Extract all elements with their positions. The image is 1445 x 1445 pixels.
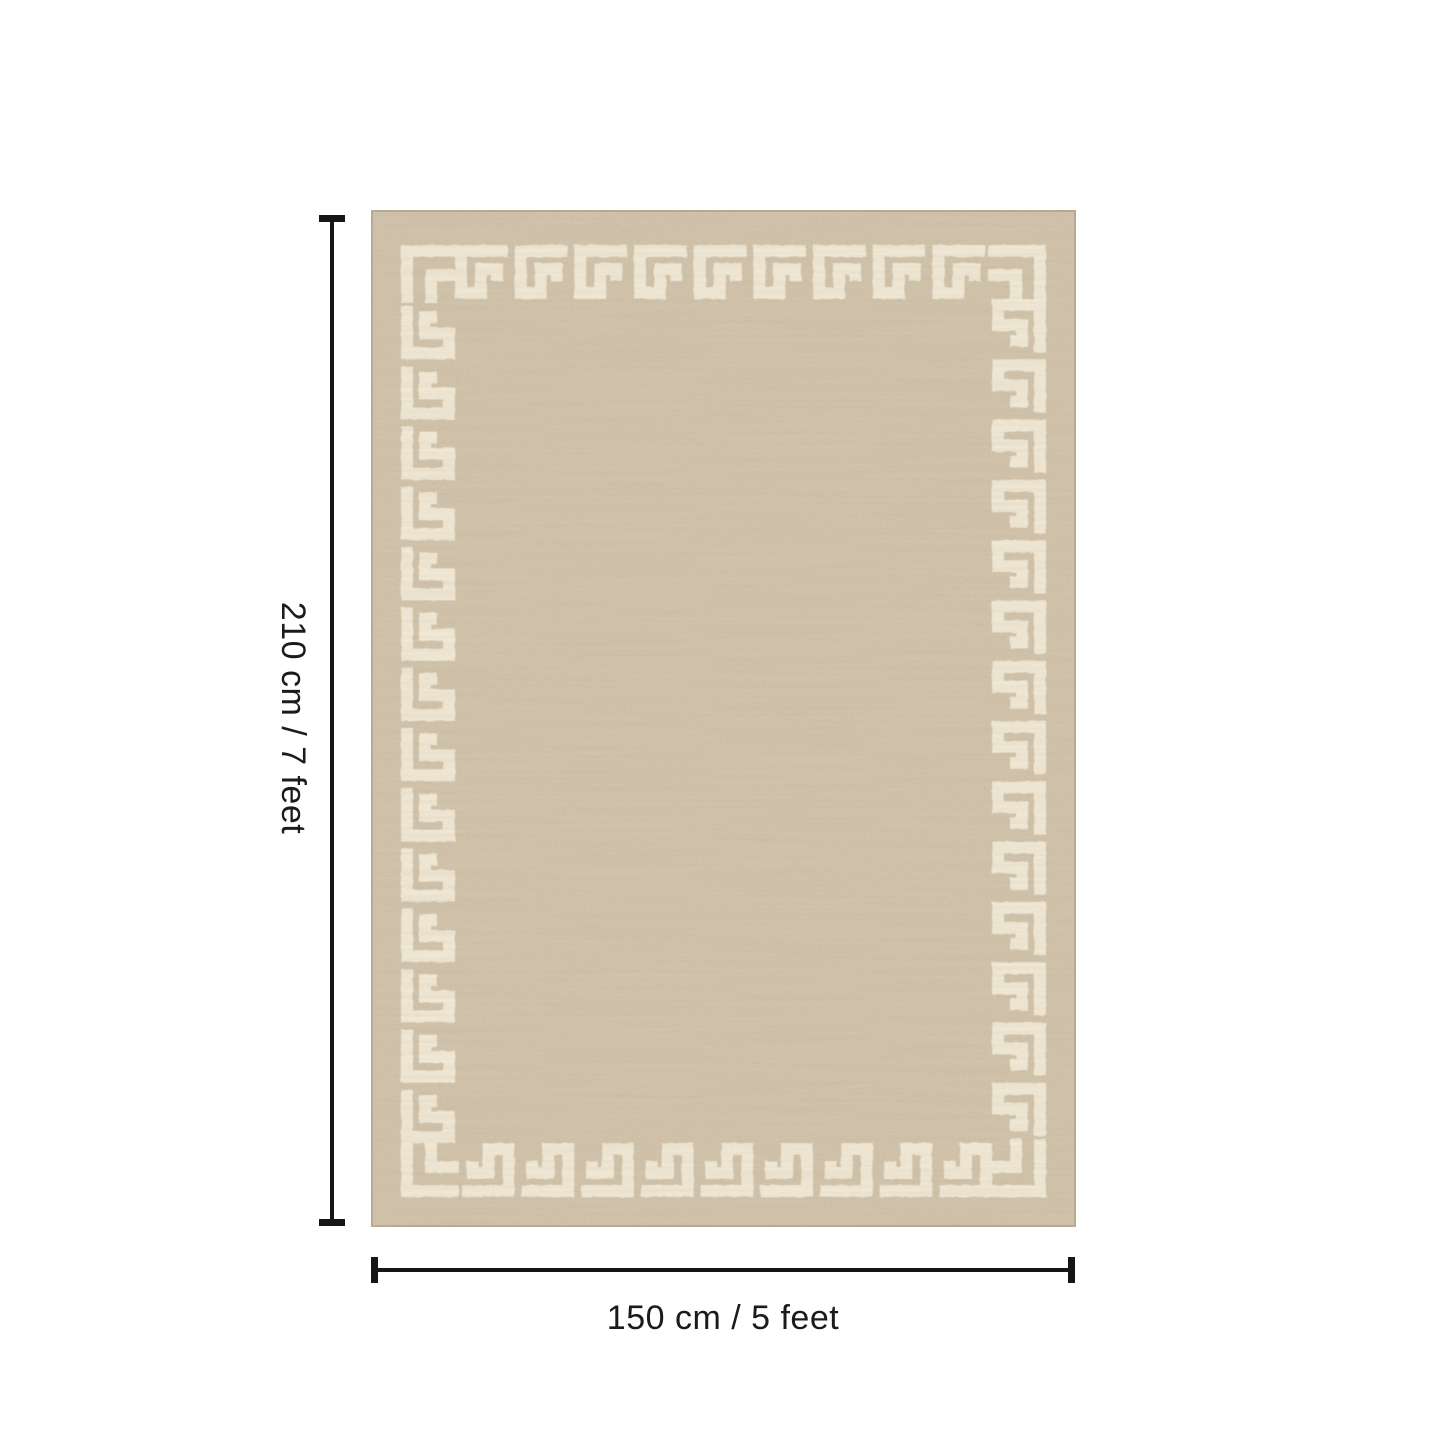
- width-dimension-line: [373, 1268, 1073, 1272]
- height-dimension-bottom-cap: [319, 1219, 345, 1226]
- rug-grain-dark: [371, 210, 1076, 1227]
- height-label: 210 cm / 7 feet: [272, 568, 314, 868]
- rug-image: [371, 210, 1076, 1227]
- width-label: 150 cm / 5 feet: [573, 1297, 873, 1339]
- width-dimension-right-cap: [1068, 1257, 1075, 1283]
- height-dimension-line: [330, 215, 334, 1226]
- width-dimension-left-cap: [371, 1257, 378, 1283]
- height-dimension-top-cap: [319, 215, 345, 222]
- diagram-stage: 210 cm / 7 feet 150 cm / 5 feet: [0, 0, 1445, 1445]
